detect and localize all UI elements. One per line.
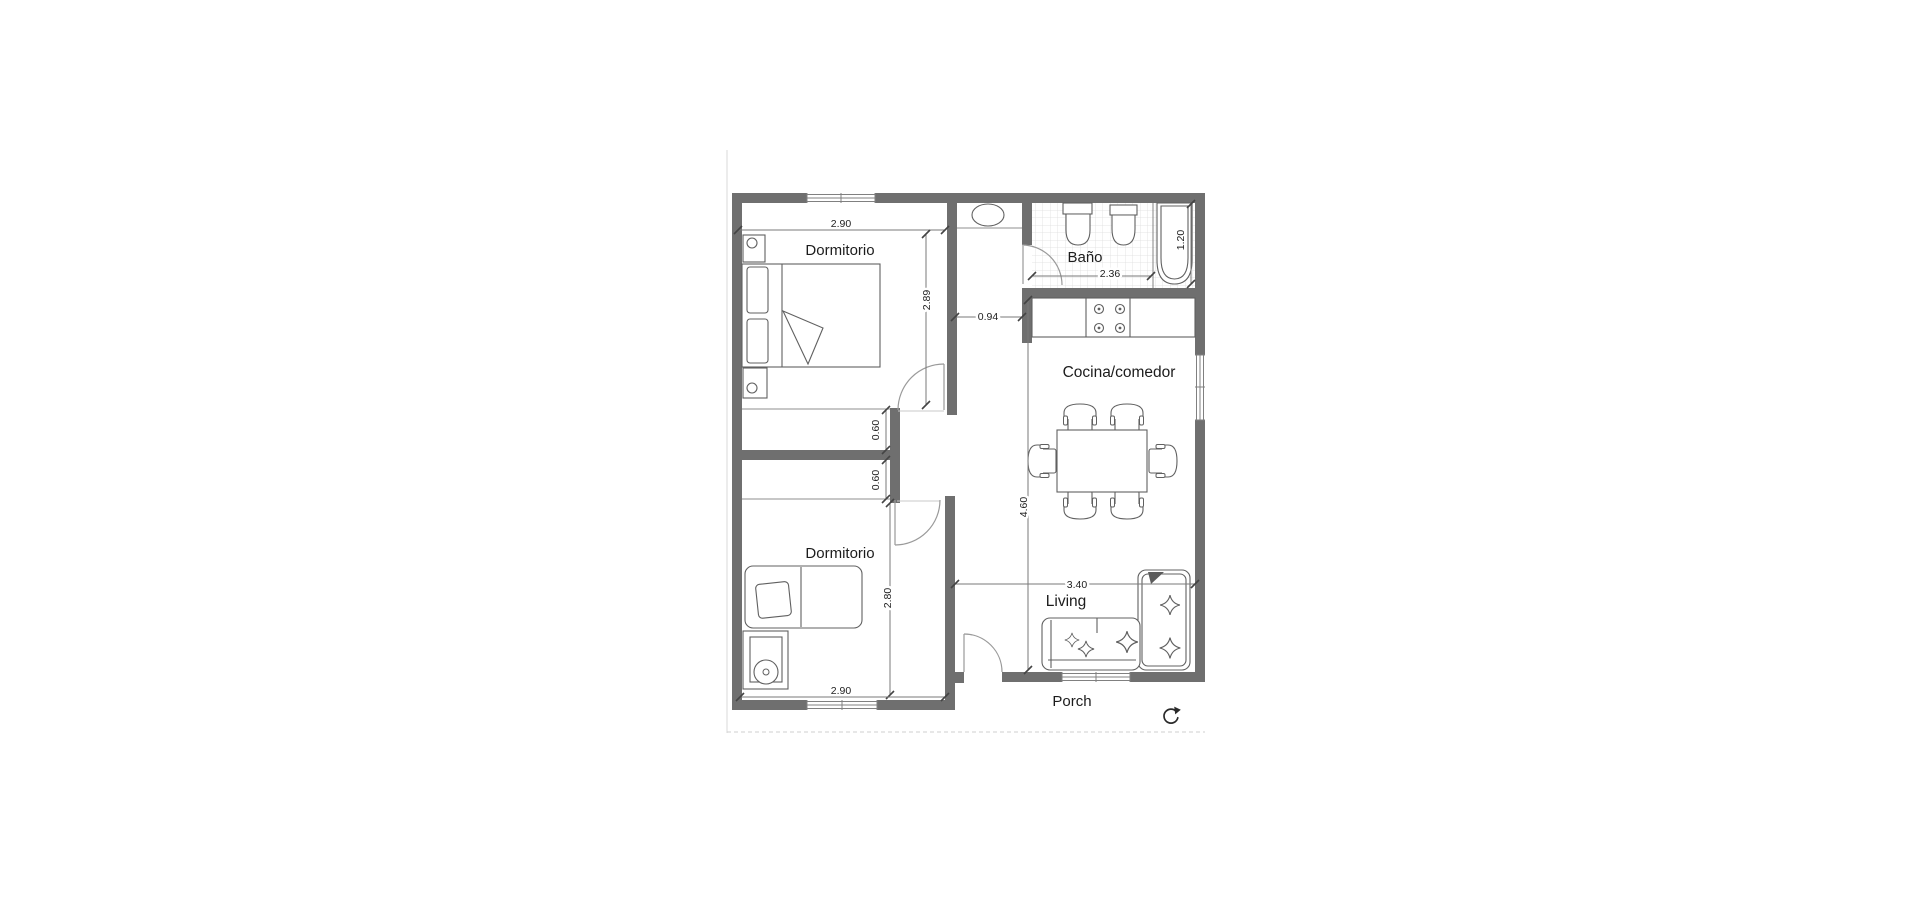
wall-kitchen-north [1022,288,1205,298]
toilet-tank [1063,203,1092,214]
sofa-chaise [1138,570,1190,670]
svg-text:0.94: 0.94 [978,311,999,323]
dining-table [1057,430,1147,492]
toilet-bowl [1066,214,1090,245]
chair-bottom-left [1064,491,1097,519]
dim-closet2-depth: 0.60 [870,456,890,503]
label-kitchen: Cocina/comedor [1063,364,1176,381]
stool [754,660,778,684]
door-entry [964,634,1002,672]
chair-bottom-right [1111,491,1144,519]
kitchen-fixtures [1032,298,1195,337]
dim-bedroom2-height: 2.80 [882,499,894,699]
laundry-sink [972,204,1004,226]
svg-text:1.20: 1.20 [1175,230,1187,251]
bedroom2-furniture [743,566,862,689]
chair-right [1149,445,1177,478]
single-bed-pillow [755,581,791,618]
sofa [1042,570,1190,670]
dim-kitchen-length: 4.60 [1018,296,1032,674]
rotate-icon[interactable] [1164,707,1181,723]
svg-text:2.90: 2.90 [831,218,852,230]
dim-closet1-depth: 0.60 [870,406,890,454]
door-bedroom2 [895,500,940,545]
svg-text:4.60: 4.60 [1018,497,1030,518]
svg-text:3.40: 3.40 [1067,579,1088,591]
chair-left [1028,445,1056,478]
svg-text:0.60: 0.60 [870,420,882,441]
wall-bedroom2-east [945,496,955,700]
window-kitchen-east [1195,355,1205,420]
wall-east [1195,193,1205,682]
dining-set [1028,404,1177,519]
wall-north [732,193,1205,203]
window-living-south [1062,672,1130,682]
bed-pillow-1 [747,267,768,313]
svg-text:2.80: 2.80 [882,588,894,609]
svg-text:0.60: 0.60 [870,470,882,491]
window-bedroom2-south [807,700,877,710]
label-porch: Porch [1052,693,1091,710]
wall-closet-stub [890,408,900,503]
label-bedroom1: Dormitorio [805,242,874,259]
svg-text:2.90: 2.90 [831,685,852,697]
dim-bedroom1-height: 2.89 [921,230,933,409]
bidet-tank [1110,205,1137,215]
label-bedroom2: Dormitorio [805,545,874,562]
bed-pillow-2 [747,319,768,363]
label-bathroom: Baño [1067,249,1102,266]
dim-hall-width: 0.94 [951,311,1026,323]
page-background: 2.90 2.89 0.94 0.60 0.60 2.80 [0,0,1920,920]
window-bedroom1-north [807,193,875,203]
wall-entry-stub [955,672,964,683]
svg-text:2.89: 2.89 [921,290,933,311]
door-bedroom1 [898,364,944,410]
chair-top-right [1111,404,1144,432]
dim-bedroom1-width: 2.90 [734,218,949,234]
wall-bathroom-west [1022,193,1032,245]
nightstand-bottom [743,368,767,398]
nightstand-top [743,235,765,262]
floor-plan: 2.90 2.89 0.94 0.60 0.60 2.80 [0,0,1920,920]
bedroom1-furniture [742,235,880,398]
label-living: Living [1046,593,1087,610]
wall-bedroom-separator [732,450,900,460]
chair-top-left [1064,404,1097,432]
bidet-bowl [1112,215,1135,245]
svg-text:2.36: 2.36 [1100,268,1121,280]
kitchen-counter [1032,298,1195,337]
